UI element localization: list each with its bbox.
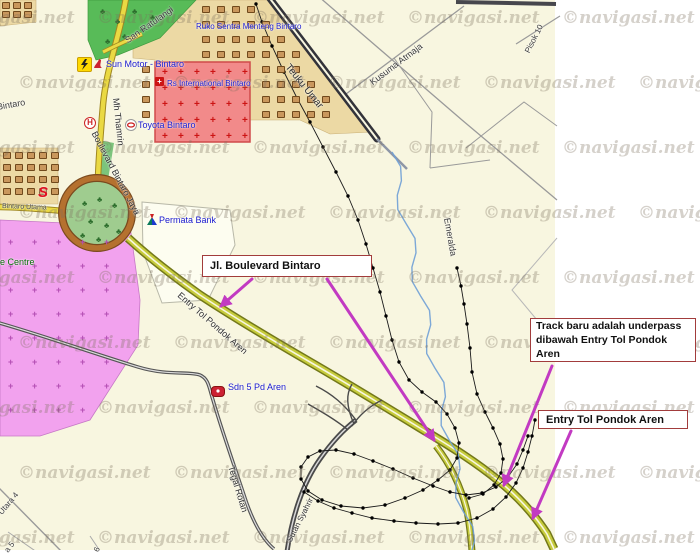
callout-jl-boulevard-bintaro: Jl. Boulevard Bintaro [202,255,372,277]
arrow-entry-tol [533,431,571,518]
callout-text: Entry Tol Pondok Aren [546,414,680,426]
map-canvas[interactable]: ♣♣♣♣♣♣♣♣♣♣♣♣♣♣♣♣++++++++++++++++++++++++… [0,0,700,550]
callout-text-line1: Track baru adalah underpass [536,319,690,333]
callout-text: Jl. Boulevard Bintaro [210,260,364,272]
arrow-boulevard-left [221,279,252,306]
callout-text-line2: dibawah Entry Tol Pondok Aren [536,333,690,361]
callout-entry-tol: Entry Tol Pondok Aren [538,410,688,429]
arrow-boulevard-right [327,279,434,440]
callout-track-baru: Track baru adalah underpass dibawah Entr… [530,318,696,362]
